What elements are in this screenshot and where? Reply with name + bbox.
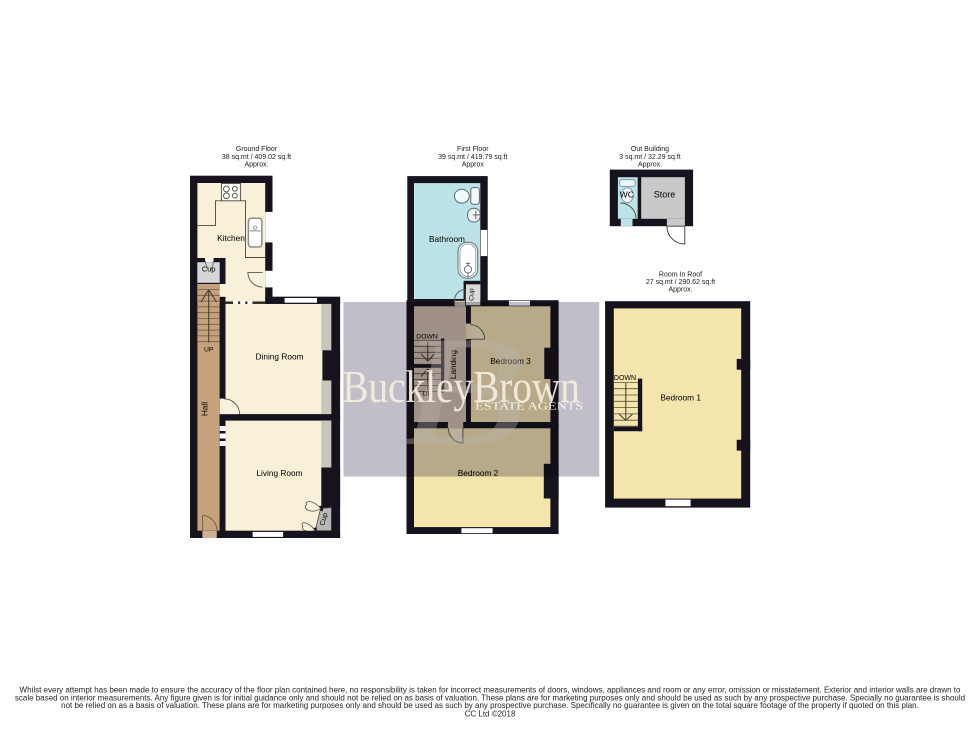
svg-text:Cup: Cup bbox=[469, 288, 476, 301]
svg-text:Cup: Cup bbox=[202, 265, 216, 274]
svg-text:Store: Store bbox=[654, 190, 676, 200]
svg-text:Living Room: Living Room bbox=[256, 468, 302, 478]
svg-text:39 sq.mt / 419.79 sq.ft: 39 sq.mt / 419.79 sq.ft bbox=[438, 154, 507, 161]
svg-text:Kitchen: Kitchen bbox=[217, 233, 245, 243]
svg-text:WC: WC bbox=[620, 190, 634, 200]
svg-text:CC Ltd ©2018: CC Ltd ©2018 bbox=[465, 710, 516, 719]
svg-text:First Floor: First Floor bbox=[457, 146, 489, 153]
svg-text:Room In Roof: Room In Roof bbox=[659, 271, 702, 278]
svg-text:ESTATE AGENTS: ESTATE AGENTS bbox=[475, 400, 583, 412]
svg-text:Approx.: Approx. bbox=[244, 162, 268, 169]
svg-text:Out Building: Out Building bbox=[631, 146, 669, 153]
svg-text:Ground Floor: Ground Floor bbox=[236, 146, 278, 153]
svg-text:Approx.: Approx. bbox=[668, 287, 692, 294]
svg-text:38 sq.mt / 409.02 sq.ft: 38 sq.mt / 409.02 sq.ft bbox=[222, 154, 291, 161]
svg-text:Bathroom: Bathroom bbox=[429, 234, 465, 244]
svg-text:27 sq.mt / 290.62 sq.ft: 27 sq.mt / 290.62 sq.ft bbox=[646, 279, 715, 286]
svg-text:UP: UP bbox=[204, 347, 214, 354]
svg-text:3 sq.mt / 32.29 sq.ft: 3 sq.mt / 32.29 sq.ft bbox=[619, 154, 681, 161]
svg-text:Bedroom 1: Bedroom 1 bbox=[660, 393, 701, 403]
svg-text:Dining Room: Dining Room bbox=[256, 352, 304, 362]
svg-text:Hall: Hall bbox=[201, 402, 210, 416]
svg-text:Approx.: Approx. bbox=[638, 162, 662, 169]
svg-text:Approx: Approx bbox=[462, 162, 485, 169]
svg-text:DOWN: DOWN bbox=[614, 375, 636, 382]
